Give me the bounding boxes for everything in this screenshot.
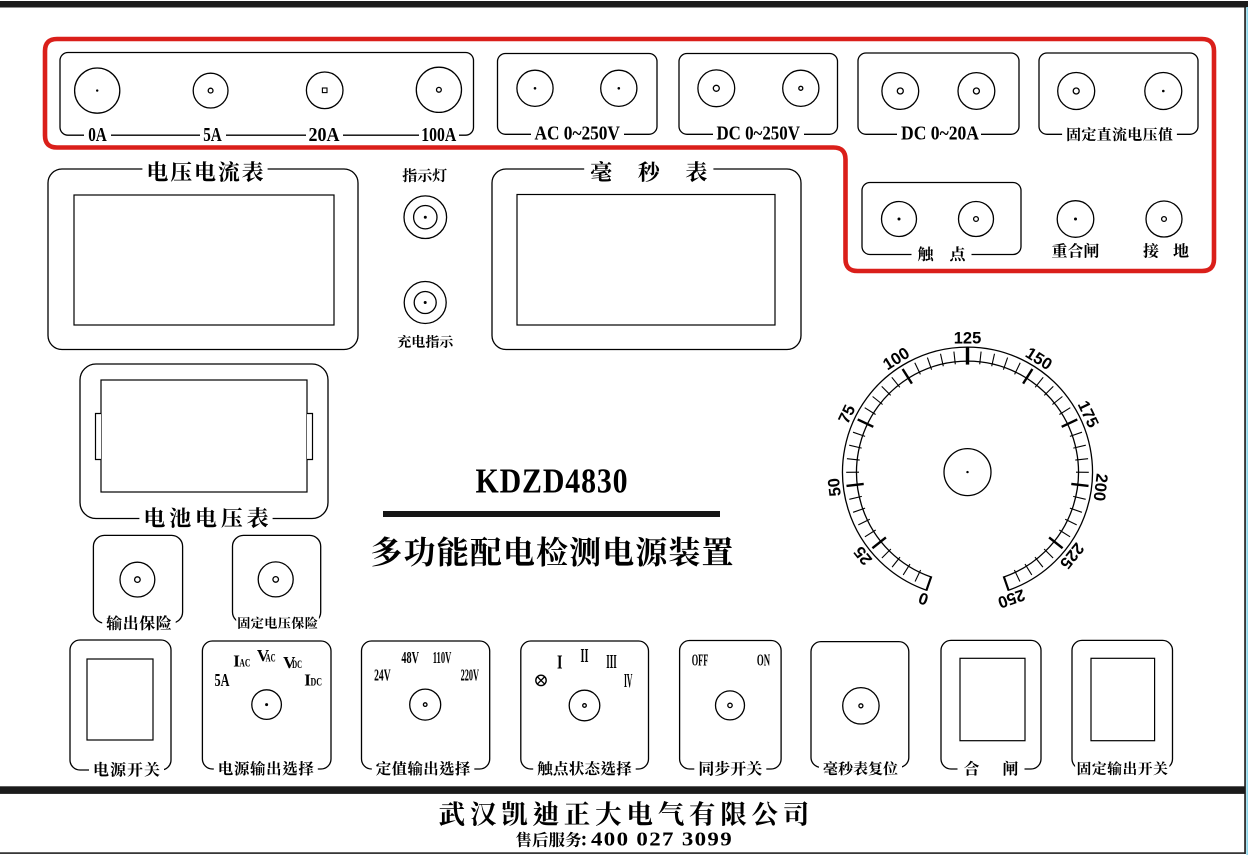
svg-text:200: 200	[1090, 473, 1111, 502]
svg-text:220V: 220V	[461, 665, 480, 684]
svg-text:5A: 5A	[203, 124, 222, 146]
svg-text:ON: ON	[757, 650, 770, 669]
svg-text:II: II	[581, 645, 589, 667]
svg-text:III: III	[606, 651, 617, 673]
svg-text::: :	[581, 828, 588, 850]
svg-text:DC: DC	[292, 657, 302, 671]
svg-text:100A: 100A	[421, 124, 456, 146]
svg-text:48V: 48V	[401, 648, 419, 667]
svg-text:5A: 5A	[215, 670, 230, 690]
svg-text:AC 0~250V: AC 0~250V	[534, 124, 620, 145]
svg-text:AC: AC	[266, 650, 276, 664]
svg-text:125: 125	[954, 330, 982, 348]
svg-text:I: I	[557, 652, 563, 674]
svg-text:DC: DC	[311, 675, 323, 689]
svg-text:DC 0~250V: DC 0~250V	[716, 124, 800, 145]
svg-text:AC: AC	[239, 656, 250, 670]
svg-text:OFF: OFF	[692, 650, 709, 669]
svg-text:24V: 24V	[374, 665, 391, 684]
svg-text:400 027 3099: 400 027 3099	[591, 828, 733, 850]
svg-text:0A: 0A	[88, 124, 107, 146]
svg-text:50: 50	[825, 477, 845, 497]
svg-text:KDZD4830: KDZD4830	[476, 463, 629, 501]
svg-text:20A: 20A	[309, 124, 340, 146]
svg-text:IV: IV	[624, 670, 633, 692]
svg-text:DC 0~20A: DC 0~20A	[901, 124, 979, 145]
svg-text:110V: 110V	[433, 648, 452, 667]
